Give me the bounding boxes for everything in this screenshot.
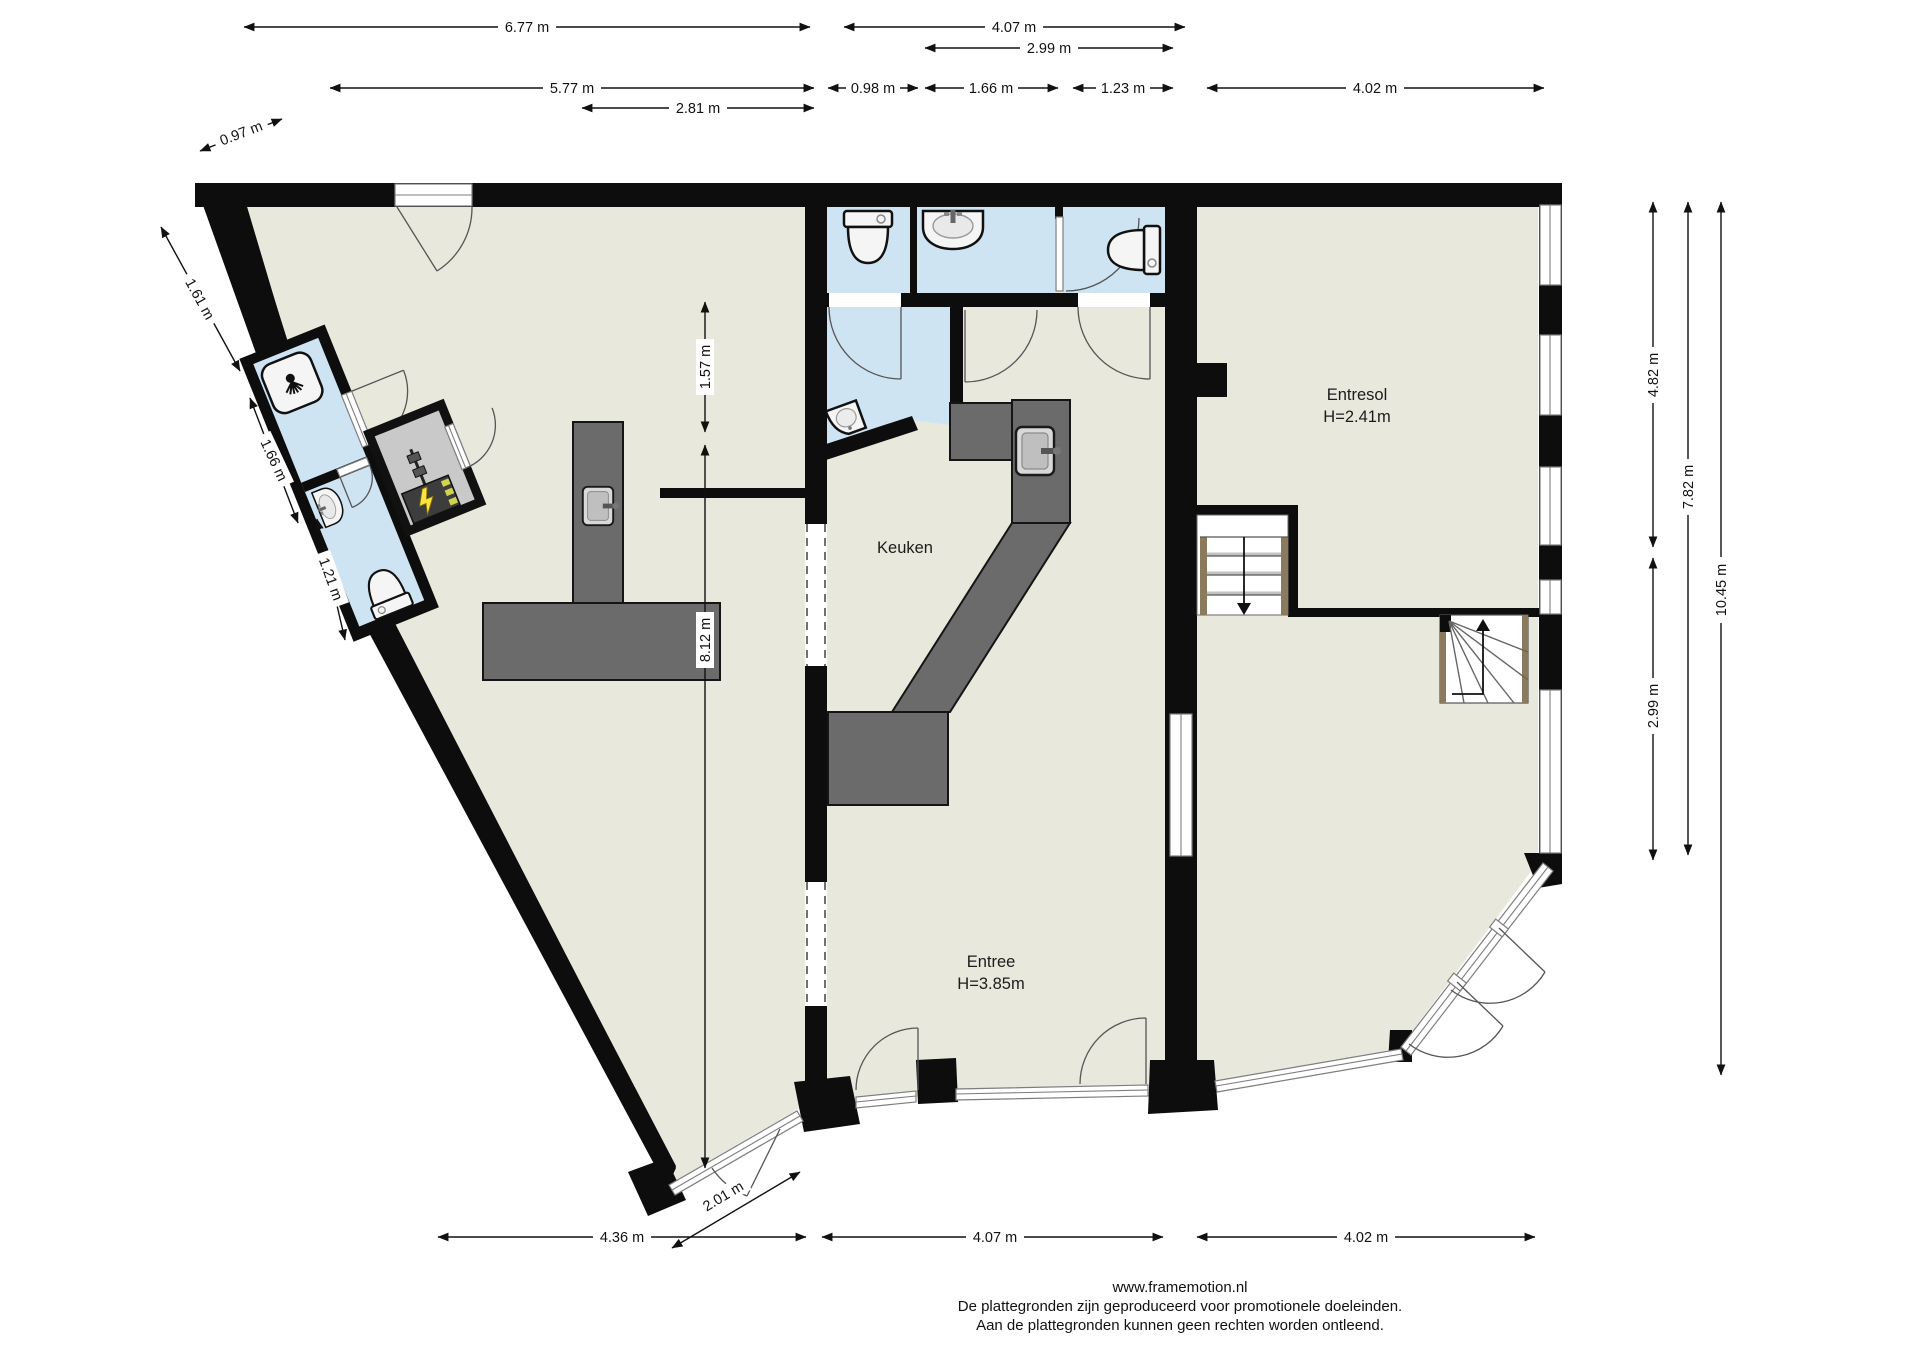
svg-text:1.61 m: 1.61 m (181, 276, 216, 323)
svg-text:4.07 m: 4.07 m (973, 1230, 1017, 1246)
wall-stair-right (1288, 505, 1298, 617)
dim-123: 1.23 m (1073, 79, 1173, 97)
footer-disclaimer-2: Aan de plattegronden kunnen geen rechten… (976, 1317, 1384, 1334)
wall-foot-mid (916, 1058, 958, 1104)
dim-299-right: 2.99 m (1644, 558, 1662, 860)
svg-text:0.97 m: 0.97 m (218, 119, 265, 150)
winder-staircase-up (1440, 615, 1528, 703)
floorplan-drawing: Keuken Entresol H=2.41m Entree H=3.85m 6… (0, 0, 1920, 1358)
dim-097: 0.97 m (200, 115, 282, 152)
wall-foot-left (794, 1076, 860, 1132)
dim-407-bottom: 4.07 m (822, 1228, 1163, 1246)
label-entree: Entree (967, 953, 1016, 971)
counter-sink-icon (583, 487, 619, 525)
kitchen-sink-icon (1016, 427, 1061, 475)
wall-foot-mid-right (1148, 1060, 1218, 1114)
svg-text:4.07 m: 4.07 m (992, 20, 1036, 36)
dim-407-top: 4.07 m (844, 18, 1185, 36)
footer-website: www.framemotion.nl (1111, 1279, 1247, 1296)
dim-402-top: 4.02 m (1207, 79, 1544, 97)
svg-text:2.01 m: 2.01 m (700, 1179, 746, 1216)
dimensions-top: 6.77 m 4.07 m 2.99 m 5.77 m 0.98 m 1.66 … (200, 18, 1544, 151)
svg-text:10.45 m: 10.45 m (1714, 564, 1730, 616)
window-right-2 (1540, 335, 1561, 415)
svg-text:2.81 m: 2.81 m (676, 101, 720, 117)
window-right-4 (1540, 580, 1561, 614)
svg-text:1.57 m: 1.57 m (698, 345, 714, 389)
dim-677: 6.77 m (244, 18, 810, 36)
wall-mid-right (1165, 183, 1197, 1085)
svg-text:0.98 m: 0.98 m (851, 81, 895, 97)
wall-wc1-basin (910, 207, 917, 293)
svg-text:4.02 m: 4.02 m (1344, 1230, 1388, 1246)
svg-text:2.99 m: 2.99 m (1027, 41, 1071, 57)
wall-stair-top (1197, 505, 1298, 515)
dashed-opening-lower (805, 882, 827, 1006)
svg-text:8.12 m: 8.12 m (698, 618, 714, 662)
dim-782: 7.82 m (1679, 202, 1697, 855)
dimensions-bottom: 4.36 m 2.01 m 4.07 m 4.02 m (438, 1172, 1535, 1248)
label-entree-height: H=3.85m (957, 975, 1024, 993)
footer-disclaimer-1: De plattegronden zijn geproduceerd voor … (958, 1298, 1402, 1315)
wall-left-partition (660, 488, 805, 498)
svg-text:2.99 m: 2.99 m (1646, 684, 1662, 728)
dim-436: 4.36 m (438, 1228, 806, 1246)
svg-text:6.77 m: 6.77 m (505, 20, 549, 36)
window-right-3 (1540, 467, 1561, 545)
window-right-5 (1540, 690, 1561, 853)
dim-577: 5.77 m (330, 79, 814, 97)
wall-notch-entresol (1193, 363, 1227, 397)
svg-text:4.36 m: 4.36 m (600, 1230, 644, 1246)
svg-text:4.82 m: 4.82 m (1646, 353, 1662, 397)
sink-icon (923, 210, 983, 249)
dimensions-right: 4.82 m 2.99 m 7.82 m 10.45 m (1644, 202, 1730, 1075)
label-keuken: Keuken (877, 539, 933, 557)
window-entree-wall (1170, 714, 1192, 856)
dim-166-top: 1.66 m (925, 79, 1058, 97)
dim-482: 4.82 m (1644, 202, 1662, 547)
svg-text:4.02 m: 4.02 m (1353, 81, 1397, 97)
label-entresol: Entresol (1327, 386, 1388, 404)
svg-text:7.82 m: 7.82 m (1681, 465, 1697, 509)
dim-098: 0.98 m (828, 79, 918, 97)
window-right-1 (1540, 205, 1561, 285)
svg-text:1.66 m: 1.66 m (969, 81, 1013, 97)
svg-text:5.77 m: 5.77 m (550, 81, 594, 97)
svg-text:1.23 m: 1.23 m (1101, 81, 1145, 97)
footer: www.framemotion.nl De plattegronden zijn… (958, 1279, 1402, 1334)
dim-281: 2.81 m (582, 99, 814, 117)
dim-402-bottom: 4.02 m (1197, 1228, 1535, 1246)
dim-299-top: 2.99 m (925, 39, 1173, 57)
staircase-entresol-down (1197, 515, 1288, 615)
label-entresol-height: H=2.41m (1323, 408, 1390, 426)
dashed-opening-upper (805, 524, 827, 666)
floorplan-page: Keuken Entresol H=2.41m Entree H=3.85m 6… (0, 0, 1920, 1358)
dim-1045: 10.45 m (1712, 202, 1730, 1075)
